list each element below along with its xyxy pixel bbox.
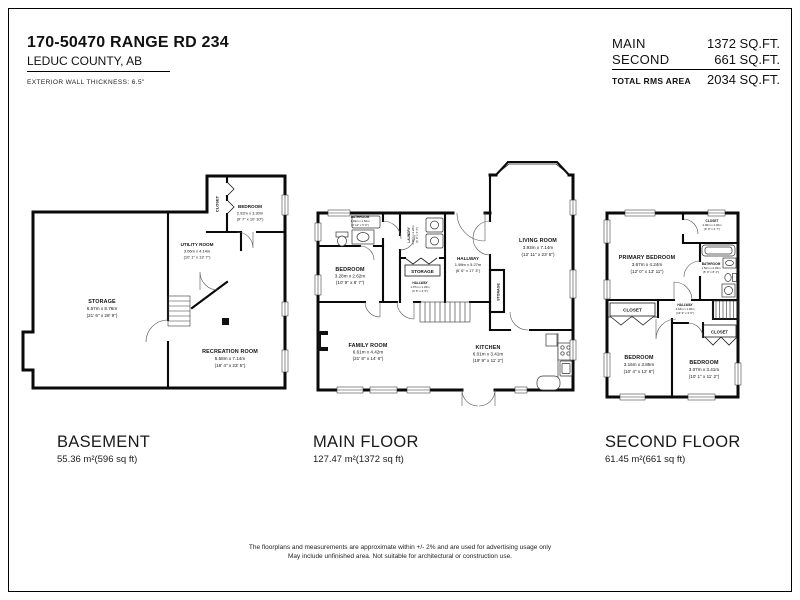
- svg-text:(21' 6" x 28' 9"): (21' 6" x 28' 9"): [87, 313, 118, 318]
- room-label-bedroom: BEDROOM 3.28m x 2.62m (10' 9" x 8' 7"): [335, 267, 366, 285]
- svg-text:(10' 1" x 11' 2"): (10' 1" x 11' 2"): [689, 374, 720, 379]
- svg-text:3.16m x 3.85m: 3.16m x 3.85m: [624, 362, 655, 367]
- room-label-closet: CLOSET: [215, 195, 220, 212]
- svg-text:BEDROOM: BEDROOM: [335, 267, 365, 273]
- svg-text:BEDROOM: BEDROOM: [689, 360, 719, 366]
- main-title: MAIN FLOOR 127.47 m²(1372 sq ft): [313, 433, 419, 465]
- svg-text:HALLWAY: HALLWAY: [457, 256, 479, 261]
- laundry-machines: [426, 218, 443, 248]
- fireplace-opening: [321, 335, 328, 347]
- svg-text:BEDROOM: BEDROOM: [624, 355, 654, 361]
- svg-text:BEDROOM: BEDROOM: [238, 204, 262, 209]
- disclaimer-line1: The floorplans and measurements are appr…: [0, 543, 800, 552]
- property-city: LEDUC COUNTY, AB: [27, 54, 170, 72]
- svg-text:(4' 11" x 5' 0"): (4' 11" x 5' 0"): [351, 223, 369, 227]
- title-block: 170-50470 RANGE RD 234 LEDUC COUNTY, AB …: [27, 34, 229, 86]
- svg-text:(10' 1" x 13' 7"): (10' 1" x 13' 7"): [184, 255, 211, 260]
- room-label-closet-right: CLOSET: [711, 330, 728, 335]
- svg-text:PRIMARY BEDROOM: PRIMARY BEDROOM: [619, 255, 676, 261]
- svg-text:3.06m x 4.14m: 3.06m x 4.14m: [184, 249, 211, 254]
- total-area-value: 2034 SQ.FT.: [707, 72, 780, 88]
- basement-title: BASEMENT 55.36 m²(596 sq ft): [57, 433, 150, 465]
- floor-area: 61.45 m²(661 sq ft): [605, 454, 741, 465]
- disclaimer: The floorplans and measurements are appr…: [0, 543, 800, 561]
- area-summary-table: MAIN 1372 SQ.FT. SECOND 661 SQ.FT. TOTAL…: [612, 36, 780, 89]
- svg-text:2.92m x 3.30m: 2.92m x 3.30m: [237, 211, 264, 216]
- svg-text:(18' 4" x 23' 5"): (18' 4" x 23' 5"): [215, 363, 246, 368]
- kitchen-fixtures: [537, 333, 572, 390]
- room-label-living: LIVING ROOM 3.93m x 7.14m (12' 11" x 23'…: [519, 238, 557, 257]
- main-area-label: MAIN: [612, 36, 646, 52]
- svg-text:LIVING ROOM: LIVING ROOM: [519, 238, 557, 244]
- svg-text:(6' 6" x 17' 3"): (6' 6" x 17' 3"): [456, 268, 481, 273]
- second-door-arcs: [656, 219, 703, 339]
- svg-text:(5' 0" x 8' 2"): (5' 0" x 8' 2"): [703, 270, 719, 274]
- svg-text:(6' 9" x 7' 6"): (6' 9" x 7' 6"): [415, 227, 419, 243]
- svg-text:(3' 6" x 4' 5"): (3' 6" x 4' 5"): [412, 289, 428, 293]
- svg-text:CLOSET: CLOSET: [215, 195, 220, 212]
- svg-text:KITCHEN: KITCHEN: [475, 345, 500, 351]
- room-label-kitchen: KITCHEN 6.01m x 3.41m (19' 9" x 11' 2"): [473, 345, 504, 363]
- floor-area: 55.36 m²(596 sq ft): [57, 454, 150, 465]
- total-area-label: TOTAL RMS AREA: [612, 73, 691, 89]
- room-label-bedroom: BEDROOM 2.92m x 3.30m (9' 7" x 10' 10"): [237, 204, 264, 222]
- svg-text:(12' 0" x 13' 11"): (12' 0" x 13' 11"): [630, 269, 663, 274]
- room-label-bathroom: BATHROOM 1.52m x 2.49m (5' 0" x 8' 2"): [701, 262, 721, 274]
- svg-text:(9' 7" x 10' 10"): (9' 7" x 10' 10"): [237, 217, 264, 222]
- main-bifold-doors: [405, 258, 437, 264]
- disclaimer-line2: May include unfinished area. Not suitabl…: [0, 552, 800, 561]
- svg-text:STORAGE: STORAGE: [497, 283, 501, 301]
- floor-name: BASEMENT: [57, 433, 150, 452]
- svg-text:(10' 4" x 12' 8"): (10' 4" x 12' 8"): [624, 369, 655, 374]
- svg-text:UTILITY ROOM: UTILITY ROOM: [181, 242, 214, 247]
- room-label-storage: STORAGE 6.57m x 8.76m (21' 6" x 28' 9"): [87, 299, 118, 318]
- support-post: [222, 318, 229, 325]
- table-row-total: TOTAL RMS AREA 2034 SQ.FT.: [612, 69, 780, 89]
- room-label-laundry: LAUNDRY 2.05m x 2.28m (6' 9" x 7' 6"): [407, 225, 419, 245]
- room-label-bathroom: BATHROOM 1.49m x 1.52m (4' 11" x 5' 0"): [350, 215, 370, 227]
- room-label-bedroom-right: BEDROOM 3.07m x 3.41m (10' 1" x 11' 2"): [689, 360, 720, 379]
- floor-name: SECOND FLOOR: [605, 433, 741, 452]
- svg-text:6.61m x 4.42m: 6.61m x 4.42m: [353, 350, 384, 355]
- svg-text:6.01m x 3.41m: 6.01m x 3.41m: [473, 352, 504, 357]
- room-label-storage-box: STORAGE: [411, 269, 434, 274]
- svg-text:5.58m x 7.14m: 5.58m x 7.14m: [215, 356, 246, 361]
- svg-text:3.28m x 2.62m: 3.28m x 2.62m: [335, 274, 366, 279]
- floor-name: MAIN FLOOR: [313, 433, 419, 452]
- room-label-hallway-small: HALLWAY 1.07m x 1.34m (3' 6" x 4' 5"): [410, 281, 430, 293]
- svg-text:(12' 11" x 23' 5"): (12' 11" x 23' 5"): [521, 252, 554, 257]
- svg-text:RECREATION ROOM: RECREATION ROOM: [202, 349, 258, 355]
- table-row: MAIN 1372 SQ.FT.: [612, 36, 780, 52]
- room-label-hallway: HALLWAY 1.98m x 5.27m (6' 6" x 17' 3"): [455, 256, 482, 273]
- room-label-closet-top: CLOSET 2.06m x 1.40m (6' 9" x 4' 7"): [702, 219, 722, 231]
- svg-text:3.07m x 3.41m: 3.07m x 3.41m: [689, 367, 720, 372]
- room-label-primary: PRIMARY BEDROOM 3.67m x 4.24m (12' 0" x …: [619, 255, 676, 274]
- floorplan-sheet: 170-50470 RANGE RD 234 LEDUC COUNTY, AB …: [0, 0, 800, 600]
- property-address: 170-50470 RANGE RD 234: [27, 34, 229, 52]
- svg-text:FAMILY ROOM: FAMILY ROOM: [348, 343, 387, 349]
- basement-stairs: [168, 296, 190, 326]
- svg-text:1.98m x 5.27m: 1.98m x 5.27m: [455, 262, 482, 267]
- svg-text:(6' 9" x 4' 7"): (6' 9" x 4' 7"): [704, 227, 720, 231]
- basement-floorplan: CLOSET BEDROOM 2.92m x 3.30m (9' 7" x 10…: [20, 162, 300, 402]
- room-label-bedroom-left: BEDROOM 3.16m x 3.85m (10' 4" x 12' 8"): [624, 355, 655, 374]
- svg-text:(10' 9" x 8' 7"): (10' 9" x 8' 7"): [336, 280, 365, 285]
- main-stairs: [420, 302, 470, 322]
- room-label-hallway: HALLWAY 4.18m x 1.06m (13' 9" x 3' 6"): [675, 303, 695, 315]
- floor-area: 127.47 m²(1372 sq ft): [313, 454, 419, 465]
- svg-text:(13' 9" x 3' 6"): (13' 9" x 3' 6"): [676, 311, 694, 315]
- svg-text:STORAGE: STORAGE: [88, 299, 116, 305]
- table-row: SECOND 661 SQ.FT.: [612, 52, 780, 68]
- svg-text:(21' 8" x 14' 6"): (21' 8" x 14' 6"): [353, 356, 384, 361]
- svg-text:6.57m x 8.76m: 6.57m x 8.76m: [87, 306, 118, 311]
- room-label-storage-closet: STORAGE: [497, 283, 501, 301]
- svg-text:(19' 9" x 11' 2"): (19' 9" x 11' 2"): [473, 358, 504, 363]
- room-label-family: FAMILY ROOM 6.61m x 4.42m (21' 8" x 14' …: [348, 343, 387, 361]
- second-title: SECOND FLOOR 61.45 m²(661 sq ft): [605, 433, 741, 465]
- svg-text:3.67m x 4.24m: 3.67m x 4.24m: [632, 262, 663, 267]
- second-floorplan: PRIMARY BEDROOM 3.67m x 4.24m (12' 0" x …: [598, 195, 758, 410]
- room-label-utility: UTILITY ROOM 3.06m x 4.14m (10' 1" x 13'…: [181, 242, 214, 260]
- main-floorplan: BATHROOM 1.49m x 1.52m (4' 11" x 5' 0") …: [310, 155, 595, 425]
- second-area-label: SECOND: [612, 52, 669, 68]
- svg-text:3.93m x 7.14m: 3.93m x 7.14m: [523, 245, 554, 250]
- wall-thickness-note: EXTERIOR WALL THICKNESS: 6.5": [27, 79, 229, 86]
- second-area-value: 661 SQ.FT.: [714, 52, 780, 68]
- room-label-recreation: RECREATION ROOM 5.58m x 7.14m (18' 4" x …: [202, 349, 258, 368]
- main-area-value: 1372 SQ.FT.: [707, 36, 780, 52]
- second-stairs: [713, 301, 738, 319]
- room-label-closet-left: CLOSET: [623, 308, 642, 313]
